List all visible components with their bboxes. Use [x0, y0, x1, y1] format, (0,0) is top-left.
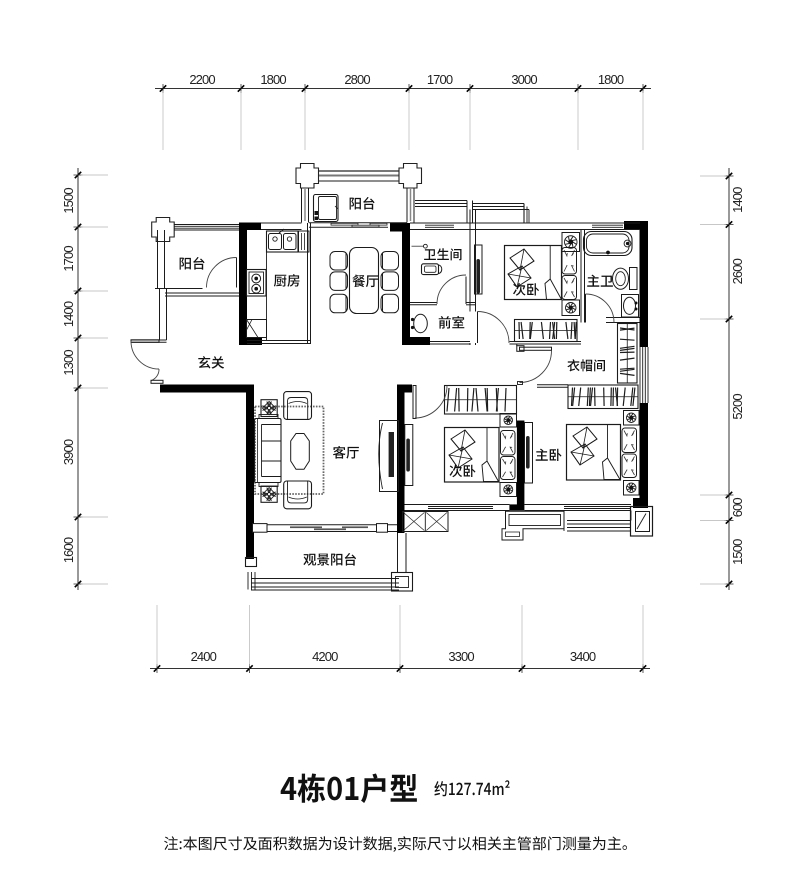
svg-text:1300: 1300: [61, 350, 76, 376]
svg-text:600: 600: [730, 498, 745, 518]
svg-text:1700: 1700: [61, 246, 76, 272]
svg-text:1400: 1400: [730, 187, 745, 213]
svg-text:4200: 4200: [312, 649, 338, 664]
svg-text:1500: 1500: [730, 539, 745, 565]
svg-text:1600: 1600: [61, 537, 76, 563]
svg-text:3000: 3000: [511, 72, 537, 87]
svg-text:1700: 1700: [427, 72, 453, 87]
svg-text:5200: 5200: [730, 394, 745, 420]
svg-text:3300: 3300: [448, 649, 474, 664]
svg-text:3900: 3900: [61, 439, 76, 465]
svg-text:1400: 1400: [61, 301, 76, 327]
svg-text:1500: 1500: [61, 188, 76, 214]
svg-text:2400: 2400: [191, 649, 217, 664]
svg-text:1800: 1800: [260, 72, 286, 87]
svg-text:1800: 1800: [598, 72, 624, 87]
svg-text:3400: 3400: [570, 649, 596, 664]
svg-text:2600: 2600: [730, 258, 745, 284]
svg-text:2200: 2200: [189, 72, 215, 87]
svg-text:2800: 2800: [344, 72, 370, 87]
